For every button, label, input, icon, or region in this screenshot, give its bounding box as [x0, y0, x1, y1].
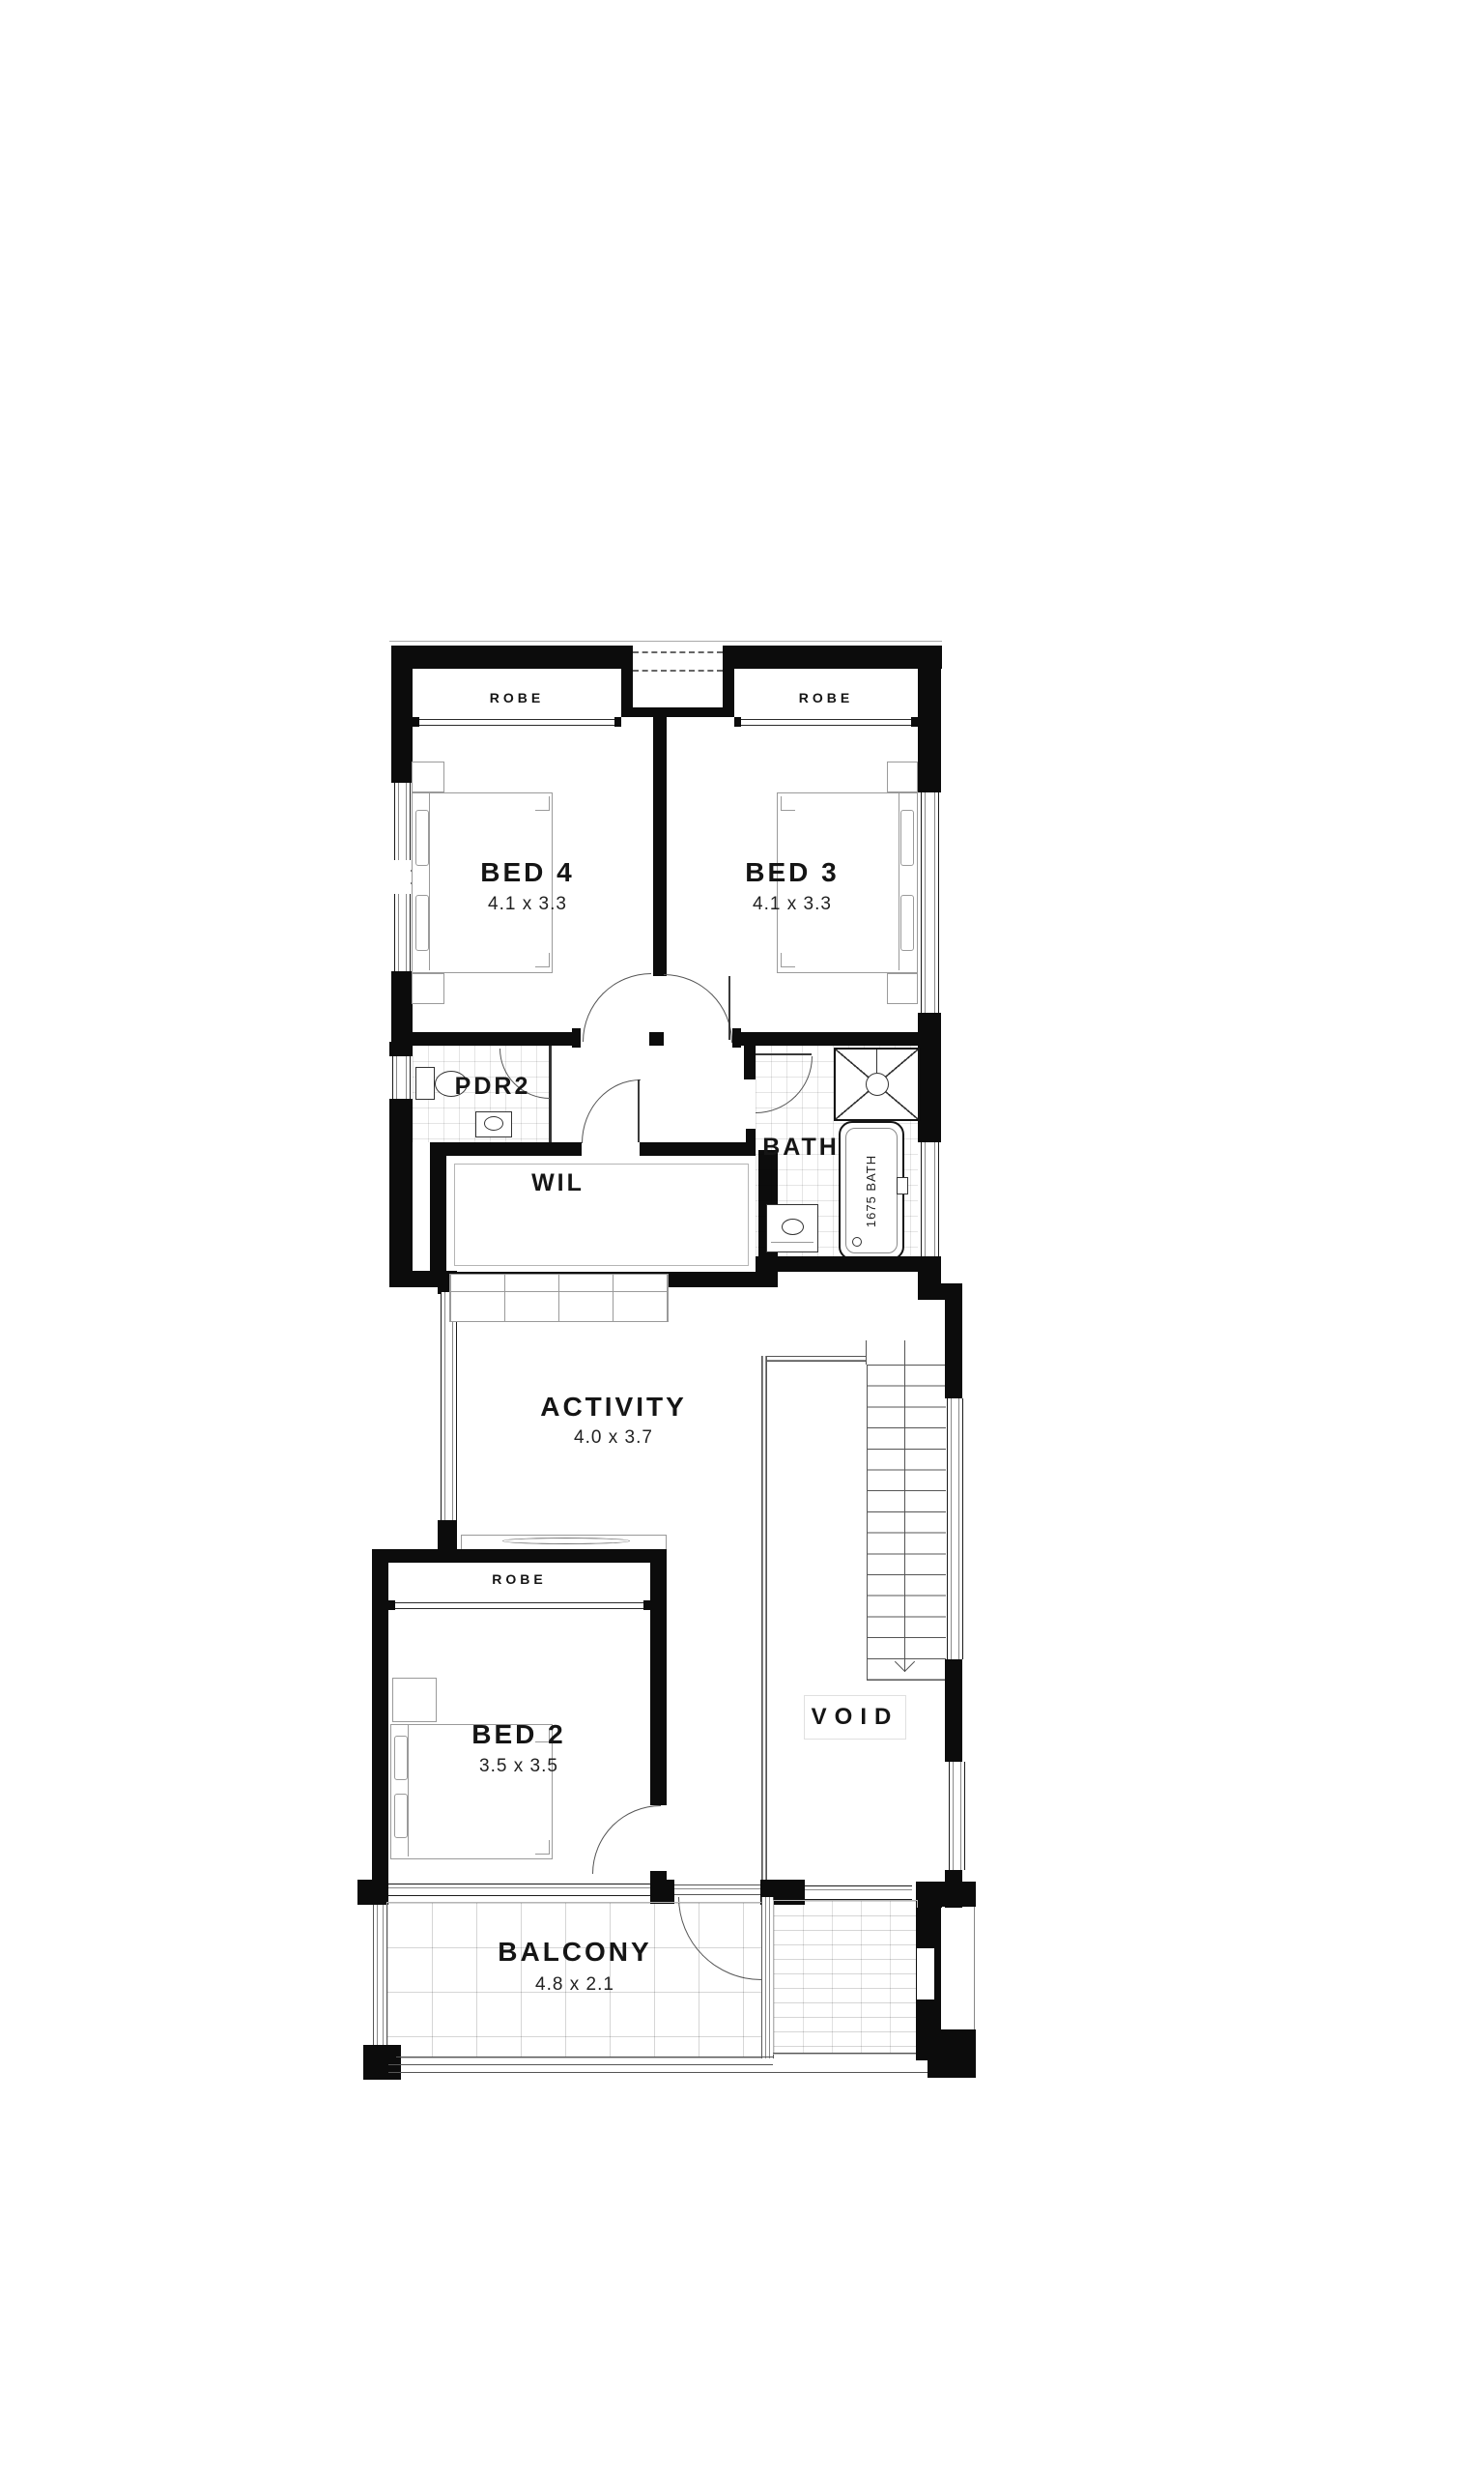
bed3-foot-notch-top [781, 796, 795, 811]
robe2-track-cap-1 [388, 1600, 395, 1610]
door-leaf-bath [756, 1053, 812, 1055]
bed4-dims-text: 4.1 x 3.3 [488, 894, 567, 915]
activity-tv-screen [502, 1538, 630, 1544]
bathtub-tap [897, 1177, 908, 1194]
void-left-edge [761, 1356, 767, 1880]
door-arc-bed4 [583, 973, 651, 1042]
page: { "floorplan": { "north_label": "(N)", "… [0, 0, 1484, 2474]
shower-drain [866, 1073, 889, 1096]
wall-left-upper [391, 646, 413, 783]
robe-track-cap-1 [413, 717, 419, 727]
bed2-label: BED 2 [403, 1718, 635, 1751]
terrace-bottom-line [773, 2053, 916, 2054]
robe-track-cap-3 [734, 717, 741, 727]
window-bed4-left-upper [394, 783, 411, 860]
bed4-side-table-bottom [412, 973, 444, 1004]
bed4-foot-notch-top [535, 796, 550, 811]
stair-stringer-stub [866, 1340, 867, 1365]
bed3-side-table-top [887, 762, 918, 792]
activity-name-text: ACTIVITY [540, 1392, 687, 1423]
wall-left-mid [391, 971, 413, 1042]
wil-label: WIL [483, 1169, 633, 1196]
wall-wil-top-right [640, 1142, 756, 1156]
robe2-track-cap-2 [643, 1600, 650, 1610]
robe-bed3-text: ROBE [799, 690, 853, 705]
wall-far-right-top [942, 1882, 976, 1907]
bed2-dims-text: 3.5 x 3.5 [479, 1756, 558, 1777]
activity-cupboard [449, 1274, 669, 1322]
wall-bath-bottom [756, 1256, 918, 1272]
balcony-dims: 4.8 x 2.1 [459, 1973, 691, 1997]
wall-niche-left [621, 652, 633, 717]
wall-right-stairs-bottom [945, 1659, 962, 1762]
door-arc-wil [582, 1079, 641, 1143]
wall-wil-top-left [430, 1142, 582, 1156]
bed2-pillow-2 [394, 1794, 408, 1838]
shower-head-stem [876, 1050, 877, 1073]
robe-bed2-text: ROBE [492, 1571, 546, 1587]
wall-balcony-corner-bl [363, 2045, 401, 2080]
balcony-dims-text: 4.8 x 2.1 [535, 1974, 614, 1996]
activity-label: ACTIVITY [498, 1392, 729, 1423]
wall-terrace-corner-right [916, 1882, 942, 1908]
wall-left-chase [389, 1099, 413, 1287]
bath-label: BATH [744, 1133, 858, 1162]
activity-dims: 4.0 x 3.7 [498, 1426, 729, 1450]
void-text: VOID [812, 1704, 899, 1731]
wall-right-mid [918, 1013, 941, 1142]
robe-sliding-track-bed2 [388, 1602, 650, 1609]
balcony-rail-line-2 [388, 2064, 773, 2065]
floor-plan: (N) ROBE ROBE BED 4 4.1 x 3.3 BED 3 [357, 638, 995, 2087]
bed4-label: BED 4 [412, 856, 643, 889]
balcony-rail-line-1 [396, 2057, 773, 2057]
bed3-side-table-bottom [887, 973, 918, 1004]
wall-terrace-right-notch [916, 1947, 935, 2000]
door-leaf-wil [638, 1079, 640, 1142]
bed4-name-text: BED 4 [480, 857, 574, 888]
wall-bedrooms-bottom-right [739, 1032, 918, 1046]
bath-shower [834, 1048, 920, 1121]
bath-vanity-basin [782, 1219, 804, 1235]
wall-bed2-right [650, 1549, 667, 1805]
bed2-name-text: BED 2 [471, 1719, 565, 1750]
bed3-dims-text: 4.1 x 3.3 [753, 894, 832, 915]
wall-top-left [398, 646, 633, 669]
wall-bedrooms-bottom-left [413, 1032, 578, 1046]
robe-bed4-text: ROBE [490, 690, 544, 705]
robe-sliding-track-bed3 [734, 719, 918, 726]
wall-bath-door-post [744, 1046, 756, 1079]
wall-right-upper [918, 646, 941, 792]
balcony-left-railing [373, 1905, 387, 2048]
window-terrace-front [805, 1885, 912, 1900]
door-leaf-bed3 [728, 976, 730, 1040]
niche-dashed-line-2 [633, 670, 723, 672]
window-bed2-balcony [388, 1884, 650, 1896]
wall-left-pdr2-top [389, 1042, 413, 1056]
bed3-dims: 4.1 x 3.3 [676, 893, 908, 916]
balcony-name-text: BALCONY [498, 1937, 651, 1968]
wall-wil-left [430, 1150, 446, 1274]
bed4-side-table-top [412, 762, 444, 792]
niche-dashed-line-1 [633, 651, 723, 653]
balcony-door-threshold [674, 1884, 760, 1895]
wall-bed2-left [372, 1549, 388, 1904]
robe-track-cap-4 [911, 717, 918, 727]
window-stairs-right [947, 1398, 963, 1659]
balcony-rail-line-3 [388, 2072, 927, 2073]
bathtub-label-text: 1675 BATH [865, 1154, 879, 1226]
wil-text: WIL [531, 1169, 585, 1197]
bed3-name-text: BED 3 [745, 857, 839, 888]
wall-right-stairs-top [945, 1300, 962, 1398]
roof-edge-line [389, 641, 942, 642]
bed2-dims: 3.5 x 3.5 [403, 1755, 635, 1778]
bed4-dims: 4.1 x 3.3 [412, 893, 643, 916]
door-jamb-bed4 [572, 1028, 581, 1048]
bed4-foot-notch-bottom [535, 953, 550, 967]
pdr2-label: PDR2 [430, 1073, 556, 1100]
activity-dims-text: 4.0 x 3.7 [574, 1427, 653, 1449]
bed3-label: BED 3 [676, 856, 908, 889]
wall-niche-right [723, 652, 734, 717]
stair-treads [867, 1365, 946, 1681]
wall-niche-bottom [633, 707, 723, 717]
wall-right-step-connector [918, 1283, 962, 1300]
window-activity-left [441, 1292, 457, 1520]
pdr2-text: PDR2 [455, 1073, 531, 1101]
bed3-foot-notch-bottom [781, 953, 795, 967]
balcony-label: BALCONY [459, 1937, 691, 1968]
door-arc-bed3 [664, 974, 732, 1043]
wall-corner-br [927, 2029, 976, 2078]
void-top-edge [761, 1356, 867, 1362]
robe-sliding-track-bed4 [413, 719, 621, 726]
terrace-paving [773, 1900, 918, 2055]
wall-balcony-corner-left [357, 1880, 388, 1905]
bed2-foot-notch-bottom [535, 1840, 550, 1855]
robe-bed3-label: ROBE [734, 684, 918, 711]
window-bed4-left-lower [394, 894, 411, 971]
robe-bed2-label: ROBE [388, 1566, 650, 1593]
void-label-box: VOID [804, 1695, 906, 1740]
wall-balcony-post-1 [650, 1880, 674, 1904]
robe-bed4-label: ROBE [413, 684, 621, 711]
window-void-right [949, 1762, 965, 1870]
wall-hall-center-stub [649, 1032, 664, 1046]
wall-top-right [723, 646, 942, 669]
activity-cupboard-shelf-line [450, 1291, 668, 1292]
pdr2-basin-bowl [484, 1116, 503, 1131]
bath-vanity [766, 1204, 818, 1252]
bath-vanity-line [771, 1242, 813, 1243]
window-pdr2-left [392, 1056, 411, 1099]
wall-bed2-top [372, 1549, 667, 1563]
bed2-side-table-top [392, 1678, 437, 1722]
wall-bed4-bed3-divider [653, 717, 667, 976]
window-bath-right [921, 1142, 939, 1256]
door-arc-bed2 [592, 1805, 661, 1874]
bath-text: BATH [762, 1134, 840, 1162]
robe-track-cap-2 [614, 717, 621, 727]
window-bed3-right [921, 792, 939, 1013]
